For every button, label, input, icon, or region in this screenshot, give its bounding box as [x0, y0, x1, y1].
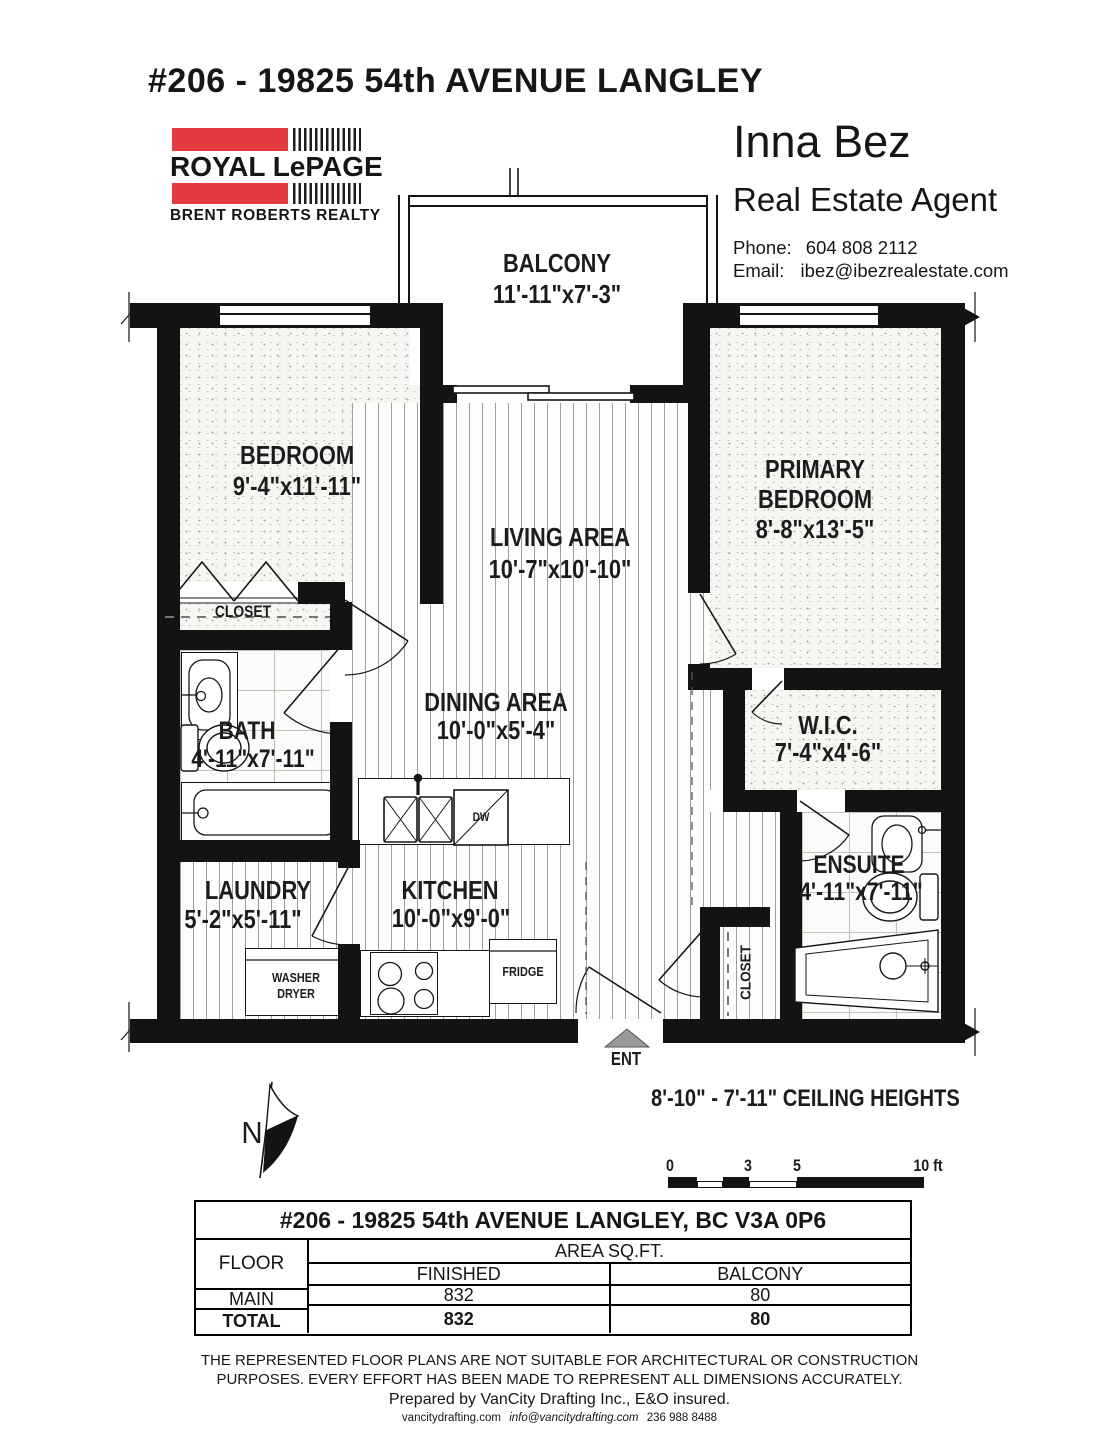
sliding-door-panel [453, 386, 549, 393]
dining-area-dims: 10'-0"x5'-4" [370, 717, 622, 743]
area-table: #206 - 19825 54th AVENUE LANGLEY, BC V3A… [194, 1200, 912, 1336]
page-title: #206 - 19825 54th AVENUE LANGLEY [148, 62, 763, 101]
wall-laundry-top [157, 840, 360, 862]
scale-segment [668, 1177, 697, 1188]
logo-stripes-bottom [293, 183, 361, 204]
wall-wic-bottom-b [845, 790, 941, 812]
drafting-email: info@vancitydrafting.com [509, 1412, 638, 1424]
kitchen-label: KITCHEN [324, 877, 576, 903]
agent-name: Inna Bez [733, 116, 911, 168]
balcony-header: BALCONY [611, 1264, 911, 1284]
living-area-dims: 10'-7"x10'-10" [434, 556, 686, 582]
agent-role: Real Estate Agent [733, 181, 997, 219]
table-row-total: 832 80 [309, 1306, 910, 1333]
balcony-label: BALCONY [431, 250, 683, 276]
ensuite-floor [802, 812, 941, 1019]
logo-subtext: BRENT ROBERTS REALTY [170, 207, 381, 225]
wall-bottom-a [130, 1019, 578, 1043]
wall-bottom-b [663, 1019, 965, 1043]
dining-area-label: DINING AREA [370, 689, 622, 715]
area-sqft-header: AREA SQ.FT. [309, 1240, 910, 1262]
ceiling-heights-note: 8'-10" - 7'-11" CEILING HEIGHTS [651, 1087, 903, 1111]
floor-total-cell: TOTAL [196, 1310, 307, 1333]
primary-window [738, 303, 880, 328]
bedroom-closet-label: CLOSET [117, 604, 369, 621]
scale-segment [723, 1177, 749, 1188]
agent-phone-label: Phone: [733, 237, 792, 258]
wall-closet-a [157, 582, 168, 604]
agent-phone-value: 604 808 2112 [806, 237, 918, 258]
wall-top-d [880, 303, 965, 328]
wall-wic-top-b [784, 668, 941, 690]
agent-email: Email: ibez@ibezrealestate.com [733, 260, 1009, 282]
drafting-contact: vancitydrafting.com info@vancitydrafting… [0, 1412, 1119, 1424]
logo-stripes-top [293, 128, 361, 151]
logo-red-bar-bottom [172, 183, 288, 204]
balcony-outline-top [398, 195, 718, 207]
ensuite-dims: 4'-11"x7'-11" [735, 880, 987, 905]
disclaimer-line-1: THE REPRESENTED FLOOR PLANS ARE NOT SUIT… [0, 1352, 1119, 1369]
kitchen-dims: 10'-0"x9'-0" [325, 905, 577, 931]
bath-tub [181, 782, 349, 844]
ensuite-label: ENSUITE [733, 853, 985, 878]
finished-header: FINISHED [309, 1264, 611, 1284]
primary-bedroom-dims: 8'-8"x13'-5" [689, 516, 941, 542]
primary-bedroom-label-1: PRIMARY [689, 456, 941, 482]
balcony-dims: 11'-11"x7'-3" [431, 281, 683, 307]
wic-label: W.I.C. [702, 712, 954, 738]
scale-segment [797, 1177, 924, 1188]
wic-dims: 7'-4"x4'-6" [702, 739, 954, 765]
dishwasher-label: DW [355, 811, 607, 823]
drafting-site: vancitydrafting.com [402, 1412, 501, 1424]
bedroom-dims: 9'-4"x11'-11" [171, 473, 423, 499]
wall-wic-top-a [688, 668, 752, 690]
floor-header-cell: FLOOR [196, 1240, 307, 1290]
agent-email-label: Email: [733, 260, 784, 281]
washer-dryer-label-1: WASHER [170, 971, 422, 984]
wall-top-a [130, 303, 218, 328]
wall-laundry-right-a [338, 840, 360, 868]
scale-tick-10ft: 10 ft [802, 1157, 1054, 1174]
fridge-label: FRIDGE [397, 965, 649, 978]
agent-email-value: ibez@ibezrealestate.com [801, 260, 1009, 281]
wall-ensuite-left [780, 812, 802, 1019]
bedroom-window [218, 303, 372, 328]
wall-bath-top [157, 630, 352, 650]
wall-closet-b [298, 582, 345, 604]
wall-right [941, 328, 965, 1043]
wall-top-c [683, 303, 738, 328]
scale-segment [697, 1181, 723, 1188]
main-balcony-value: 80 [611, 1286, 911, 1304]
ent-label: ENT [500, 1050, 752, 1068]
ent-triangle-icon [605, 1029, 649, 1047]
wall-wic-bottom-a [723, 790, 797, 812]
bedroom-label: BEDROOM [171, 442, 423, 468]
balcony-stub-lines [510, 168, 518, 196]
floor-main-cell: MAIN [196, 1290, 307, 1310]
drafting-phone: 236 988 8488 [647, 1412, 717, 1424]
wall-left [157, 328, 180, 1043]
bath-label: BATH [121, 719, 373, 744]
scale-bar [668, 1177, 924, 1188]
bath-dims: 4'-11"x7'-11" [127, 747, 379, 772]
logo-wordmark: ROYAL LePAGE [170, 151, 383, 183]
prepared-by: Prepared by VanCity Drafting Inc., E&O i… [0, 1391, 1119, 1409]
wall-entry-closet-left [700, 907, 720, 1019]
main-finished-value: 832 [309, 1286, 611, 1304]
living-area-label: LIVING AREA [434, 524, 686, 550]
floor-plan-page: #206 - 19825 54th AVENUE LANGLEY ROYAL L… [0, 0, 1119, 1444]
north-label: N [110, 1117, 395, 1148]
total-finished-value: 832 [309, 1306, 611, 1333]
sliding-door-panel [528, 393, 634, 400]
table-row-main: 832 80 [309, 1286, 910, 1306]
total-balcony-value: 80 [611, 1306, 911, 1333]
scale-segment [749, 1181, 797, 1188]
agent-phone: Phone: 604 808 2112 [733, 237, 918, 259]
area-table-title: #206 - 19825 54th AVENUE LANGLEY, BC V3A… [196, 1202, 910, 1240]
primary-bedroom-label-2: BEDROOM [689, 486, 941, 512]
logo-red-bar-top [172, 128, 288, 151]
disclaimer-line-2: PURPOSES. EVERY EFFORT HAS BEEN MADE TO … [0, 1371, 1119, 1388]
washer-dryer-label-2: DRYER [170, 987, 422, 1000]
